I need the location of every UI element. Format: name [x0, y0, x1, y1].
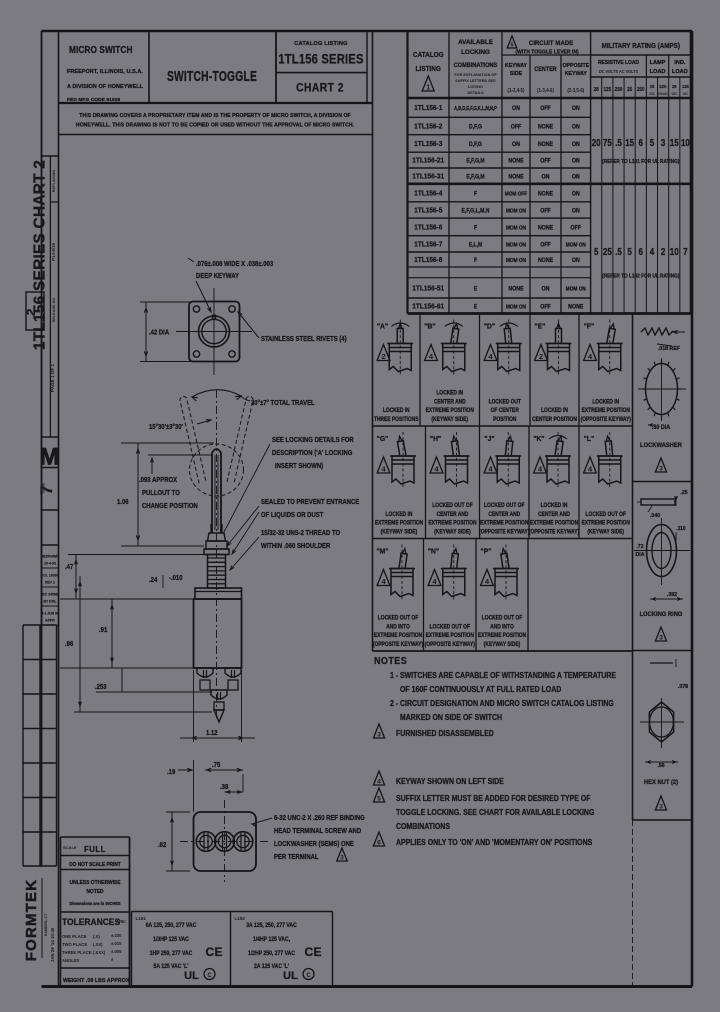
svg-text:C: C: [206, 945, 215, 959]
svg-text:KEYWAY: KEYWAY: [505, 63, 527, 69]
svg-text:LOCKED IN: LOCKED IN: [541, 503, 568, 510]
svg-text:15: 15: [670, 137, 679, 148]
svg-text:APPLIES ONLY TO 'ON' AND 'MOME: APPLIES ONLY TO 'ON' AND 'MOMENTARY ON' …: [396, 837, 592, 847]
svg-text:(REFER TO L192 FOR UL RATING): (REFER TO L192 FOR UL RATING): [602, 273, 680, 279]
svg-text:CATALOG LISTING: CATALOG LISTING: [294, 41, 347, 47]
svg-text:4: 4: [432, 577, 437, 586]
svg-text:POSITION: POSITION: [493, 416, 516, 423]
svg-text:4: 4: [488, 352, 493, 361]
svg-text:±.030: ±.030: [111, 933, 122, 938]
svg-text:FORMTEK: FORMTEK: [23, 879, 40, 962]
svg-text:4: 4: [588, 352, 593, 361]
svg-text:EXTREME POSITION: EXTREME POSITION: [582, 520, 630, 527]
svg-text:JAN 28 '14 10:40: JAN 28 '14 10:40: [50, 927, 55, 962]
svg-text:ON: ON: [542, 286, 550, 292]
svg-text:EXTREME POSITION: EXTREME POSITION: [374, 633, 422, 640]
svg-text:MOM ON: MOM ON: [506, 242, 526, 248]
svg-text:10: 10: [681, 137, 690, 148]
svg-text:LOAD: LOAD: [650, 69, 666, 75]
svg-text:5: 5: [594, 246, 598, 257]
svg-text:SEALED TO PREVENT ENTRANCE: SEALED TO PREVENT ENTRANCE: [261, 499, 360, 507]
svg-text:E,L,M: E,L,M: [469, 242, 483, 249]
svg-text:DETAILS: DETAILS: [468, 91, 484, 95]
svg-text:NONE: NONE: [538, 142, 553, 148]
svg-text:250VAC: 250VAC: [658, 92, 669, 96]
svg-text:75: 75: [603, 137, 612, 148]
svg-text:25: 25: [603, 246, 612, 257]
svg-text:1/2HP 250, 277 VAC: 1/2HP 250, 277 VAC: [248, 951, 295, 957]
svg-text:250: 250: [615, 87, 623, 93]
svg-text:HAMDEN, CT: HAMDEN, CT: [44, 913, 48, 936]
svg-text:REDRAWN: REDRAWN: [41, 555, 59, 559]
svg-text:L191: L191: [136, 916, 147, 921]
svg-text:UL: UL: [283, 970, 298, 982]
svg-text:NONE: NONE: [538, 225, 553, 231]
svg-text:LOCKED OUT OF: LOCKED OUT OF: [430, 624, 471, 631]
svg-text:E: E: [215, 945, 223, 959]
svg-text:D,F,G: D,F,G: [469, 142, 483, 149]
svg-text:.72: .72: [636, 544, 643, 550]
svg-text:MOM ON: MOM ON: [506, 225, 526, 231]
svg-text:NONE: NONE: [508, 286, 523, 292]
svg-text:(KEYWAY SIDE): (KEYWAY SIDE): [587, 529, 624, 536]
svg-text:"A": "A": [377, 322, 388, 330]
svg-text:OFF: OFF: [540, 158, 551, 164]
svg-text:OPPOSITE: OPPOSITE: [562, 63, 589, 69]
svg-text:.078: .078: [678, 684, 688, 690]
svg-text:125: 125: [604, 87, 612, 93]
svg-text:WEIGHT .08 LBS APPROX: WEIGHT .08 LBS APPROX: [63, 978, 130, 984]
svg-text:CENTER AND: CENTER AND: [538, 511, 570, 518]
svg-text:LOCKED IN: LOCKED IN: [592, 399, 619, 406]
svg-text:1 - SWITCHES ARE CAPABLE OF WI: 1 - SWITCHES ARE CAPABLE OF WITHSTANDING…: [390, 670, 616, 680]
svg-text:10-4-93: 10-4-93: [44, 562, 56, 566]
svg-text:15/32-32 UNS-2 THREAD TO: 15/32-32 UNS-2 THREAD TO: [261, 530, 340, 538]
svg-text:.5: .5: [615, 137, 622, 148]
svg-text:SUFFIX LETTER MUST BE ADDED FO: SUFFIX LETTER MUST BE ADDED FOR DESIRED …: [396, 793, 591, 803]
svg-text:PULLOUT TO: PULLOUT TO: [142, 490, 180, 498]
svg-text:ON: ON: [572, 142, 580, 148]
svg-text:WITHIN .060 SHOULDER: WITHIN .060 SHOULDER: [261, 543, 331, 551]
svg-text:UL: UL: [184, 970, 199, 982]
svg-text:.076±.008 WIDE X .038±.003: .076±.008 WIDE X .038±.003: [196, 261, 274, 269]
svg-text:±.015: ±.015: [111, 941, 122, 946]
svg-text:SWITCH-TOGGLE: SWITCH-TOGGLE: [167, 68, 257, 84]
svg-text:EXTREME POSITION: EXTREME POSITION: [428, 520, 476, 527]
svg-text:2: 2: [661, 246, 665, 257]
svg-text:P14-8/19: P14-8/19: [51, 243, 56, 261]
svg-text:(KEYWAY SIDE): (KEYWAY SIDE): [434, 529, 471, 536]
svg-text:LOCKING: LOCKING: [461, 49, 490, 56]
svg-text:NOTED: NOTED: [86, 889, 103, 895]
svg-text:P.O. 16034: P.O. 16034: [42, 574, 59, 578]
svg-text:(OPPOSITE KEYWAY): (OPPOSITE KEYWAY): [425, 641, 475, 648]
svg-text:SCALE: SCALE: [63, 845, 77, 850]
svg-text:NONE: NONE: [508, 174, 523, 180]
svg-text:E: E: [474, 304, 478, 311]
svg-text:"D": "D": [484, 322, 495, 330]
svg-text:SIDE: SIDE: [510, 71, 522, 77]
svg-text:E: E: [314, 945, 322, 959]
svg-text:.47: .47: [65, 564, 74, 572]
svg-text:1.06: 1.06: [117, 499, 129, 507]
svg-text:1.12: 1.12: [206, 730, 218, 738]
svg-text:REPLACING: REPLACING: [52, 170, 56, 192]
svg-text:3A 125, 250, 277 VAC: 3A 125, 250, 277 VAC: [246, 923, 297, 929]
svg-text:15: 15: [625, 137, 634, 148]
svg-text:MICRO SWITCH: MICRO SWITCH: [69, 44, 133, 55]
svg-text:28: 28: [672, 84, 677, 89]
svg-text:AND INTO: AND INTO: [490, 624, 514, 631]
svg-text:LOCKED IN: LOCKED IN: [541, 408, 568, 415]
svg-text:NONE: NONE: [568, 304, 583, 310]
svg-text:A,B,D,E,F,G,K,L,M,N,P: A,B,D,E,F,G,K,L,M,N,P: [454, 106, 497, 111]
svg-text:(REFER TO L191 FOR UL RATING): (REFER TO L191 FOR UL RATING): [602, 159, 680, 165]
svg-text:6: 6: [639, 246, 643, 257]
svg-text:CHART 2: CHART 2: [296, 82, 344, 95]
svg-text:-.010: -.010: [169, 575, 183, 583]
svg-text:ANGLES: ANGLES: [62, 958, 80, 963]
svg-text:M: M: [40, 444, 60, 471]
svg-text:E,F,G,L,M,N: E,F,G,L,M,N: [462, 208, 490, 215]
svg-text:(2-3,5-6): (2-3,5-6): [567, 88, 584, 94]
svg-text:MOM ON: MOM ON: [506, 258, 526, 264]
svg-text:3: 3: [661, 137, 665, 148]
svg-text:2 - CIRCUIT DESIGNATION AND MI: 2 - CIRCUIT DESIGNATION AND MICRO SWITCH…: [390, 698, 614, 708]
svg-text:6A 125, 250, 277 VAC: 6A 125, 250, 277 VAC: [146, 923, 197, 929]
svg-text:EXTREME POSITION: EXTREME POSITION: [375, 520, 423, 527]
svg-text:.19: .19: [167, 769, 176, 777]
svg-text:ARE:: ARE:: [116, 919, 126, 924]
svg-text:"J": "J": [484, 435, 494, 443]
svg-text:NONE: NONE: [538, 258, 553, 264]
svg-text:REV 2: REV 2: [45, 581, 55, 585]
svg-text:7: 7: [683, 246, 687, 257]
svg-text:SEE LOCKING DETAILS FOR: SEE LOCKING DETAILS FOR: [272, 437, 354, 445]
svg-text:(OPPOSITE KEYWAY): (OPPOSITE KEYWAY): [581, 416, 631, 423]
svg-text:LOCKED OUT: LOCKED OUT: [489, 399, 522, 406]
svg-text:HEAD TERMINAL SCREW AND: HEAD TERMINAL SCREW AND: [274, 828, 361, 836]
svg-text:3: 3: [659, 804, 663, 811]
svg-text:ON: ON: [572, 124, 580, 130]
svg-text:.38: .38: [220, 784, 229, 792]
svg-text:3: 3: [659, 466, 663, 473]
svg-text:"N": "N": [428, 547, 439, 555]
svg-text:"M": "M": [376, 547, 388, 555]
svg-text:4: 4: [429, 352, 434, 361]
svg-text:"E": "E": [535, 322, 546, 330]
svg-text:4: 4: [377, 779, 381, 786]
svg-text:HEX NUT (2): HEX NUT (2): [644, 779, 678, 786]
svg-text:.96: .96: [65, 641, 74, 649]
svg-text:D,F,G: D,F,G: [469, 124, 483, 131]
svg-text:Dimensions are in INCHES: Dimensions are in INCHES: [69, 901, 120, 906]
svg-text:PER TERMINAL: PER TERMINAL: [274, 854, 319, 862]
svg-text:DC VOLTS AC VOLTS: DC VOLTS AC VOLTS: [599, 69, 639, 74]
svg-text:INSERT SHOWN): INSERT SHOWN): [275, 463, 323, 471]
svg-text:F: F: [474, 225, 478, 232]
svg-text:.018 REF: .018 REF: [658, 346, 681, 352]
svg-text:±: ±: [111, 957, 114, 962]
svg-text:EXTREME POSITION: EXTREME POSITION: [582, 408, 630, 415]
svg-text:LOCKED OUT OF: LOCKED OUT OF: [482, 615, 523, 622]
svg-text:OFF: OFF: [540, 304, 551, 310]
svg-text:E: E: [474, 286, 478, 293]
svg-text:(KEYWAY SIDE): (KEYWAY SIDE): [484, 641, 521, 648]
svg-text:KEYWAY SHOWN ON LEFT SIDE: KEYWAY SHOWN ON LEFT SIDE: [396, 776, 504, 786]
svg-text:CENTER AND: CENTER AND: [434, 399, 466, 406]
svg-text:"K": "K": [533, 435, 544, 443]
svg-text:STAINLESS STEEL RIVETS (4): STAINLESS STEEL RIVETS (4): [261, 336, 347, 344]
svg-text:HONEYWELL. THIS DRAWING IS NO: HONEYWELL. THIS DRAWING IS NOT TO BE COP…: [76, 123, 355, 129]
svg-text:AVAILABLE: AVAILABLE: [458, 39, 493, 46]
svg-text:1TL156-21: 1TL156-21: [412, 157, 444, 164]
svg-text:COMBINATIONS: COMBINATIONS: [454, 63, 498, 69]
svg-text:±.005: ±.005: [111, 949, 122, 954]
svg-text:5: 5: [650, 137, 654, 148]
svg-text:3: 3: [659, 635, 663, 642]
svg-text:LOCKED OUT OF: LOCKED OUT OF: [432, 503, 473, 510]
svg-text:125: 125: [682, 84, 689, 89]
svg-text:2: 2: [539, 352, 543, 361]
svg-text:(1-3,4-6): (1-3,4-6): [537, 88, 554, 94]
svg-text:1TL156-8: 1TL156-8: [414, 257, 442, 264]
svg-text:MOM OFF: MOM OFF: [505, 191, 527, 197]
svg-text:VAC: VAC: [683, 92, 689, 96]
svg-text:(OPPOSITE KEYWAY): (OPPOSITE KEYWAY): [479, 529, 529, 536]
svg-text:.040: .040: [650, 513, 660, 519]
svg-text:ON: ON: [572, 174, 580, 180]
svg-text:"F": "F": [584, 322, 595, 330]
svg-text:4: 4: [588, 465, 593, 474]
svg-text:6-32 UNC-2 X .260 REF BINDING: 6-32 UNC-2 X .260 REF BINDING: [274, 815, 365, 823]
svg-text:"L": "L": [584, 435, 595, 443]
svg-text:"P": "P": [481, 547, 492, 555]
svg-text:(.X): (.X): [93, 934, 100, 939]
svg-text:ONE PLACE: ONE PLACE: [62, 934, 87, 939]
svg-text:AND INTO: AND INTO: [386, 624, 410, 631]
svg-text:1TL156-61: 1TL156-61: [412, 303, 444, 310]
svg-text:OF 160F CONTINUOUSLY AT FULL R: OF 160F CONTINUOUSLY AT FULL RATED LOAD: [400, 684, 562, 694]
svg-text:(.XX): (.XX): [93, 942, 103, 947]
svg-text:1TL156 SERIES CHART 2: 1TL156 SERIES CHART 2: [32, 160, 49, 350]
svg-text:ON: ON: [542, 174, 550, 180]
svg-text:5: 5: [377, 796, 381, 803]
svg-text:CENTER AND: CENTER AND: [437, 511, 469, 518]
svg-text:NONE: NONE: [538, 124, 553, 130]
svg-text:NONE: NONE: [508, 158, 523, 164]
svg-text:7: 7: [37, 485, 56, 494]
svg-text:OF LIQUIDS OR DUST: OF LIQUIDS OR DUST: [261, 512, 323, 520]
svg-text:1TL156-3: 1TL156-3: [414, 141, 442, 148]
svg-text:15°30'±3°30': 15°30'±3°30': [149, 423, 183, 432]
svg-text:6: 6: [639, 137, 643, 148]
svg-text:LOCKWASHER (SEMS) ONE: LOCKWASHER (SEMS) ONE: [274, 841, 354, 849]
svg-text:ON: ON: [572, 258, 580, 264]
svg-text:THREE POSITIONS: THREE POSITIONS: [374, 416, 419, 423]
svg-text:1TL156-2: 1TL156-2: [414, 123, 442, 130]
svg-text:ON: ON: [512, 106, 520, 112]
svg-text:EXTREME POSITION: EXTREME POSITION: [478, 633, 526, 640]
svg-text:.42 DIA: .42 DIA: [149, 329, 169, 337]
svg-text:RESISTIVE LOAD: RESISTIVE LOAD: [598, 60, 639, 66]
svg-text:FED MFG CODE 91929: FED MFG CODE 91929: [67, 97, 120, 103]
svg-text:TOGGLE LOCKING. SEE CHART FOR: TOGGLE LOCKING. SEE CHART FOR AVAILABLE …: [396, 807, 594, 817]
svg-text:IND.: IND.: [674, 60, 686, 66]
svg-text:F: F: [474, 191, 478, 198]
svg-text:25: 25: [650, 84, 655, 89]
svg-text:4: 4: [538, 465, 543, 474]
svg-text:3: 3: [377, 732, 381, 739]
svg-text:(OPPOSITE KEYWAY): (OPPOSITE KEYWAY): [373, 641, 423, 648]
svg-text:LOAD: LOAD: [672, 69, 688, 75]
svg-text:VDC: VDC: [649, 92, 656, 96]
svg-text:EXTREME POSITION: EXTREME POSITION: [426, 408, 474, 415]
svg-text:DEEP KEYWAY: DEEP KEYWAY: [196, 273, 240, 281]
svg-text:1TL156-1: 1TL156-1: [414, 105, 442, 112]
svg-text:1TL156 SERIES: 1TL156 SERIES: [278, 52, 363, 67]
svg-text:DO NOT SCALE PRINT: DO NOT SCALE PRINT: [69, 862, 121, 868]
svg-text:DIA: DIA: [636, 552, 645, 558]
svg-text:LOCKED OUT OF: LOCKED OUT OF: [378, 615, 419, 622]
svg-text:.62: .62: [158, 842, 167, 850]
svg-text:(WITH TOGGLE LEVER IN): (WITH TOGGLE LEVER IN): [515, 49, 579, 55]
svg-text:(.XXX): (.XXX): [93, 950, 106, 955]
svg-text:1TL156-5: 1TL156-5: [414, 207, 442, 214]
svg-text:EXTREME POSITION: EXTREME POSITION: [530, 520, 578, 527]
svg-text:TOLERANCES: TOLERANCES: [62, 917, 120, 928]
svg-text:NOTES: NOTES: [374, 656, 407, 668]
svg-text:125-: 125-: [659, 84, 668, 89]
svg-text:30°±7° TOTAL TRAVEL: 30°±7° TOTAL TRAVEL: [251, 399, 315, 408]
svg-text:"G": "G": [377, 435, 389, 443]
svg-text:4: 4: [434, 465, 439, 474]
svg-text:ON: ON: [572, 191, 580, 197]
svg-text:.253: .253: [95, 684, 107, 692]
svg-text:LOCKED IN: LOCKED IN: [383, 408, 410, 415]
svg-text:(KEYWAY SIDE): (KEYWAY SIDE): [381, 529, 418, 536]
svg-text:4: 4: [488, 465, 493, 474]
svg-text:6: 6: [377, 840, 381, 847]
svg-text:1: 1: [426, 83, 430, 92]
svg-text:C: C: [207, 973, 212, 979]
svg-text:4: 4: [381, 465, 386, 474]
svg-text:CENTER AND: CENTER AND: [488, 511, 520, 518]
svg-text:ON: ON: [512, 142, 520, 148]
svg-text:(OPPOSITE KEYWAY): (OPPOSITE KEYWAY): [529, 529, 579, 536]
svg-text:E,F,G,M: E,F,G,M: [466, 174, 485, 181]
svg-text:MARKED ON SIDE OF SWITCH: MARKED ON SIDE OF SWITCH: [400, 712, 502, 722]
svg-text:MOM ON: MOM ON: [506, 304, 526, 310]
svg-text:BY KML: BY KML: [44, 600, 57, 604]
svg-text:10: 10: [670, 246, 679, 257]
svg-text:C: C: [305, 945, 314, 959]
svg-text:COMBINATIONS: COMBINATIONS: [396, 821, 450, 831]
svg-text:.5: .5: [615, 246, 622, 257]
svg-text:1HP 250, 277 VAC: 1HP 250, 277 VAC: [150, 951, 193, 957]
svg-text:MOM ON: MOM ON: [566, 242, 586, 248]
svg-text:1/3HP 125 VAC: 1/3HP 125 VAC: [153, 937, 189, 943]
svg-text:.91: .91: [99, 627, 108, 635]
svg-text:250: 250: [637, 87, 645, 93]
svg-text:SUFFIX LETTERS SEE: SUFFIX LETTERS SEE: [455, 79, 496, 83]
svg-text:EXTREME POSITION: EXTREME POSITION: [426, 633, 474, 640]
svg-text:.75: .75: [212, 762, 221, 770]
svg-text:LOCKED OUT OF: LOCKED OUT OF: [484, 503, 525, 510]
svg-text:1TL156-4: 1TL156-4: [414, 190, 442, 197]
svg-text:LISTING: LISTING: [416, 66, 441, 73]
svg-text:4-1 JUN 99: 4-1 JUN 99: [41, 612, 58, 616]
svg-text:OFF: OFF: [540, 208, 551, 214]
svg-text:MILITARY RATING (AMPS): MILITARY RATING (AMPS): [602, 43, 680, 50]
svg-text:4: 4: [485, 577, 490, 586]
svg-text:OFF: OFF: [571, 225, 582, 231]
svg-text:MOM ON: MOM ON: [566, 286, 586, 292]
svg-text:FOR EXPLANATION OF: FOR EXPLANATION OF: [454, 73, 497, 77]
svg-text:5: 5: [627, 246, 631, 257]
svg-text:FURNISHED DISASSEMBLED: FURNISHED DISASSEMBLED: [396, 728, 494, 738]
svg-text:F: F: [474, 258, 478, 265]
svg-text:LAMP: LAMP: [650, 60, 666, 66]
svg-text:OFF: OFF: [540, 242, 551, 248]
svg-text:APPR: APPR: [45, 619, 55, 623]
svg-text:(KEYWAY SIDE): (KEYWAY SIDE): [431, 416, 468, 423]
svg-text:OF CENTER: OF CENTER: [491, 408, 520, 415]
svg-text:ON: ON: [572, 158, 580, 164]
svg-text:25: 25: [627, 87, 632, 93]
svg-text:4: 4: [381, 577, 386, 586]
svg-text:LOCKING RING: LOCKING RING: [640, 611, 683, 618]
svg-text:LOCKED OUT OF: LOCKED OUT OF: [586, 511, 627, 518]
svg-text:ON: ON: [572, 106, 580, 112]
svg-text:.24: .24: [149, 577, 158, 585]
svg-text:1TL156-31: 1TL156-31: [412, 173, 444, 180]
svg-text:.110: .110: [676, 526, 685, 532]
svg-text:.25: .25: [680, 490, 687, 496]
svg-text:CENTER: CENTER: [534, 67, 556, 73]
svg-text:MOM ON: MOM ON: [506, 208, 526, 214]
svg-text:1/4HP 125 VAC,: 1/4HP 125 VAC,: [253, 937, 291, 943]
svg-text:PAGE 1 OF 1: PAGE 1 OF 1: [50, 364, 55, 392]
svg-text:CATALOG: CATALOG: [413, 52, 444, 59]
svg-text:CENTER POSITION: CENTER POSITION: [532, 416, 577, 423]
svg-text:3: 3: [340, 855, 344, 862]
svg-text:C: C: [306, 973, 311, 979]
svg-text:CIRCUIT MADE: CIRCUIT MADE: [529, 40, 574, 47]
svg-text:L192: L192: [235, 916, 246, 921]
svg-text:LOCKWASHER: LOCKWASHER: [640, 442, 682, 449]
svg-text:THIS DRAWING COVERS A PROPRIET: THIS DRAWING COVERS A PROPRIETARY ITEM A…: [79, 113, 351, 119]
svg-text:LOCKED IN: LOCKED IN: [436, 390, 463, 397]
svg-text:OFF: OFF: [540, 106, 551, 112]
svg-text:KC 34568: KC 34568: [42, 593, 57, 597]
svg-text:28: 28: [594, 87, 599, 93]
svg-text:"B": "B": [424, 322, 435, 330]
svg-text:NONE: NONE: [538, 191, 553, 197]
svg-text:OFF: OFF: [511, 124, 522, 130]
svg-text:2: 2: [381, 352, 385, 361]
svg-text:ON: ON: [572, 208, 580, 214]
svg-text:FREEPORT, ILLINOIS, U.S.A.: FREEPORT, ILLINOIS, U.S.A.: [67, 69, 143, 75]
svg-text:UNLESS OTHERWISE: UNLESS OTHERWISE: [69, 880, 120, 886]
svg-text:KEYWAY: KEYWAY: [565, 71, 587, 77]
svg-text:1TL156-51: 1TL156-51: [412, 285, 444, 292]
svg-text:.60 DIA: .60 DIA: [652, 425, 670, 431]
svg-text:FULL: FULL: [84, 845, 106, 854]
svg-text:RELEASE NO: RELEASE NO: [52, 298, 56, 323]
svg-text:1TL156-6: 1TL156-6: [414, 224, 442, 231]
svg-text:(1-2,4-5): (1-2,4-5): [508, 88, 525, 94]
